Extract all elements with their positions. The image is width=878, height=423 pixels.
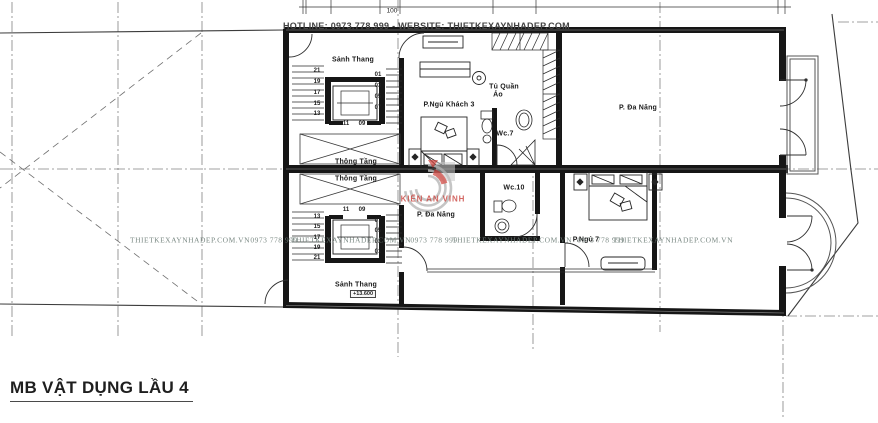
- stair-step-number: 17: [314, 90, 321, 96]
- stair-step-number: 11: [343, 121, 349, 127]
- stair-step-number: 07: [375, 105, 382, 111]
- balcony-door-top: [780, 79, 807, 155]
- stair-elevation-label: +13.600: [350, 290, 376, 298]
- drawing-title: MB VẬT DỤNG LẦU 4: [10, 378, 193, 402]
- room-label-void-bottom: Thông Tầng: [335, 176, 377, 183]
- setback-diagonals: [0, 33, 201, 304]
- balcony-door-bottom: [787, 216, 813, 271]
- balcony-top: [787, 56, 818, 174]
- hotline-text: HOTLINE: 0973.778.999 - WEBSITE: THIETKE…: [283, 21, 570, 31]
- stair-step-number: 05: [375, 228, 382, 234]
- stair-step-number: 01: [375, 249, 382, 255]
- stair-step-number: 21: [314, 255, 321, 261]
- stair-step-number: 09: [359, 121, 366, 127]
- exterior-walls: [283, 27, 788, 316]
- room-label-multi-top: P. Đa Năng: [619, 105, 657, 112]
- watermark-phone-text: 0973 778 999: [410, 236, 457, 245]
- watermark-site-text: THIETKEXAYNHADEP.COM.VN: [452, 236, 572, 245]
- room-label-guest-bedroom: P.Ngủ Khách 3: [423, 102, 474, 109]
- logo-circles: [398, 158, 468, 214]
- stair-step-number: 15: [314, 224, 321, 230]
- room-label-wardrobe-line2: Áo: [493, 92, 503, 99]
- room-label-stair-hall-top: Sảnh Thang: [332, 57, 374, 64]
- dimension-line: [299, 0, 791, 14]
- stair-step-number: 09: [359, 207, 366, 213]
- stair-step-number: 13: [314, 111, 321, 117]
- dimension-label: 100: [387, 8, 398, 15]
- watermark-site-text: THIETKEXAYNHADEP.COM.VN: [613, 236, 733, 245]
- floor-plan-image: KIẾN AN VINH HOTLINE: 0973.778.999 - WEB…: [0, 0, 878, 423]
- corridor-wall: [427, 269, 655, 272]
- balcony-bottom: [786, 193, 836, 293]
- wc7-fixtures: [481, 110, 535, 165]
- stair-step-number: 11: [343, 207, 349, 213]
- stair-step-number: 13: [314, 214, 321, 220]
- stair-step-number: 01: [375, 72, 382, 78]
- logo-watermark-text: KIẾN AN VINH: [401, 195, 466, 204]
- watermark-site-text: THIETKEXAYNHADEP.COM.VN: [130, 236, 250, 245]
- room-label-void-top: Thông Tầng: [335, 159, 377, 166]
- stair-step-number: 15: [314, 101, 321, 107]
- stair-step-number: 19: [314, 79, 321, 85]
- bedroom7-furniture: [574, 172, 662, 270]
- stair-step-number: 03: [375, 83, 382, 89]
- stair-top-flights: [292, 66, 402, 123]
- room-label-wardrobe-line1: Tủ Quần: [489, 84, 519, 91]
- wc10-fixtures: [494, 200, 516, 233]
- stair-step-number: 21: [314, 68, 321, 74]
- room-label-wc7: Wc.7: [496, 131, 513, 138]
- logo-watermark: [398, 158, 468, 219]
- room-label-wc10: Wc.10: [503, 185, 524, 192]
- stair-step-number: 19: [314, 245, 321, 251]
- room-label-multi-bottom: P. Đa Năng: [417, 212, 455, 219]
- stair-step-number: 07: [375, 218, 382, 224]
- stair-step-number: 05: [375, 94, 382, 100]
- watermark-site-text: THIETKEXAYNHADEP.COM.VN: [291, 236, 411, 245]
- room-label-stair-hall-bottom: Sảnh Thang: [335, 282, 377, 289]
